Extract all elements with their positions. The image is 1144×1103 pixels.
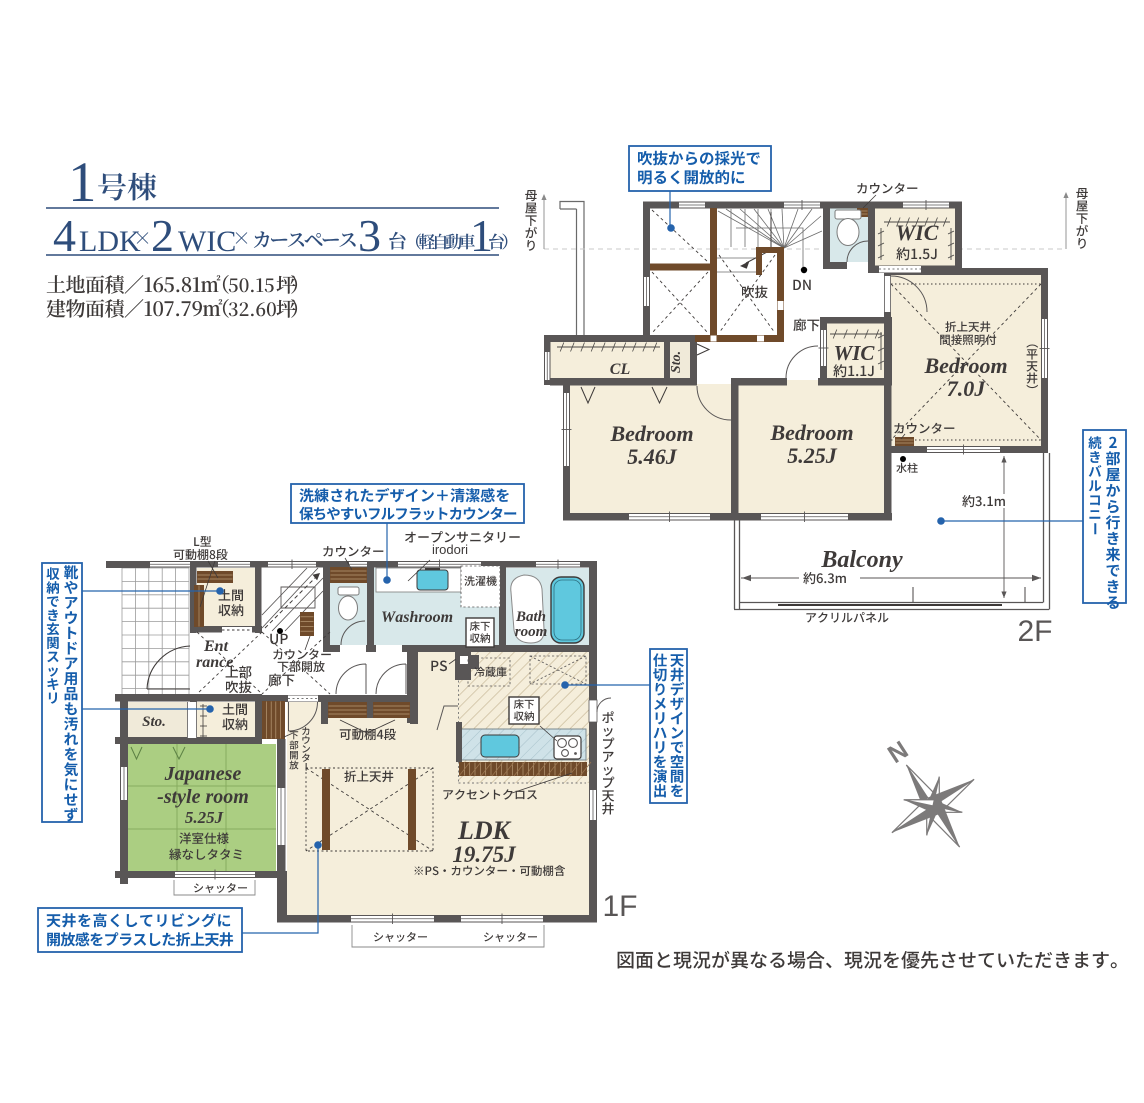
svg-text:Balcony: Balcony [820,547,903,573]
svg-text:4: 4 [53,210,76,261]
svg-text:2: 2 [151,210,174,261]
svg-text:7.0J: 7.0J [947,376,987,401]
svg-text:rance: rance [196,654,233,671]
svg-text:WIC: WIC [834,341,876,365]
svg-text:Sto.: Sto. [142,714,166,730]
svg-text:Bedroom: Bedroom [923,353,1007,378]
svg-text:Bedroom: Bedroom [769,420,853,445]
svg-text:WIC: WIC [896,220,939,245]
svg-text:Ent: Ent [203,638,229,655]
svg-text:Washroom: Washroom [381,609,453,626]
svg-text:19.75J: 19.75J [452,842,517,867]
svg-text:irodori: irodori [432,542,468,557]
svg-text:3: 3 [358,210,381,261]
svg-text:Bath: Bath [515,609,546,625]
svg-text:5.46J: 5.46J [627,444,678,469]
svg-text:Japanese: Japanese [164,763,242,785]
svg-text:LDK: LDK [79,225,141,258]
svg-text:1F: 1F [602,890,637,923]
svg-text:WIC: WIC [178,225,236,258]
svg-text:1: 1 [470,210,493,261]
svg-text:-style room: -style room [157,786,249,808]
svg-text:1: 1 [68,151,97,214]
svg-text:CL: CL [610,361,631,378]
svg-text:2F: 2F [1017,615,1052,648]
svg-text:Bedroom: Bedroom [609,421,693,446]
svg-text:5.25J: 5.25J [185,808,224,827]
svg-text:room: room [515,624,548,640]
svg-text:5.25J: 5.25J [787,443,838,468]
svg-text:Sto.: Sto. [669,351,684,373]
svg-text:LDK: LDK [457,816,512,845]
